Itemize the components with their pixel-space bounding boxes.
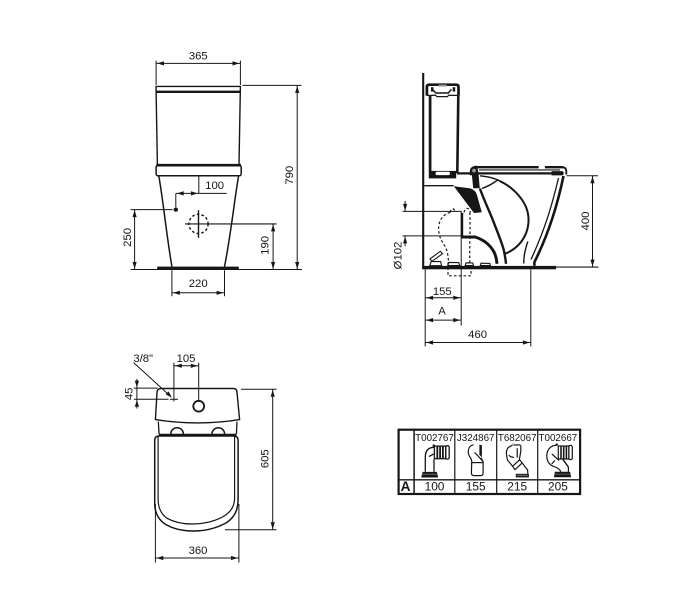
svg-text:Ø102: Ø102 (393, 242, 405, 270)
svg-text:220: 220 (189, 278, 208, 290)
svg-text:400: 400 (580, 212, 592, 231)
svg-text:100: 100 (425, 479, 445, 493)
svg-text:T682067: T682067 (498, 433, 537, 444)
svg-text:205: 205 (548, 479, 568, 493)
svg-text:605: 605 (260, 449, 272, 468)
svg-text:105: 105 (177, 353, 196, 365)
svg-text:360: 360 (189, 545, 208, 557)
svg-text:460: 460 (468, 329, 487, 341)
svg-text:365: 365 (189, 51, 208, 63)
svg-text:190: 190 (260, 236, 272, 255)
svg-text:3/8": 3/8" (133, 353, 153, 365)
svg-text:100: 100 (205, 180, 224, 192)
svg-text:A: A (438, 306, 446, 318)
svg-text:A: A (401, 479, 411, 494)
svg-text:45: 45 (124, 388, 136, 401)
svg-text:250: 250 (122, 228, 134, 247)
svg-text:155: 155 (466, 479, 486, 493)
svg-text:155: 155 (433, 286, 452, 298)
svg-text:790: 790 (284, 166, 296, 185)
svg-text:T002767: T002767 (415, 433, 454, 444)
svg-text:215: 215 (507, 479, 527, 493)
svg-text:T002667: T002667 (539, 433, 578, 444)
svg-text:J324867: J324867 (457, 433, 495, 444)
